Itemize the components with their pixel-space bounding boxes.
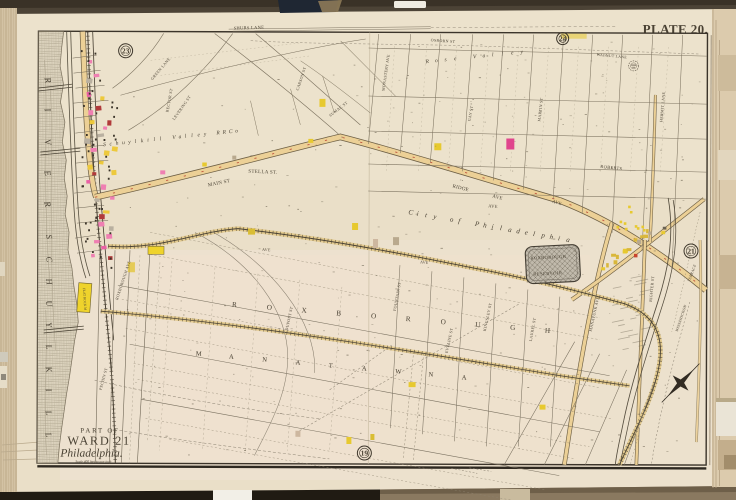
svg-text:Scale 400 feet to one inch: Scale 400 feet to one inch: [75, 460, 111, 464]
svg-text:AVE: AVE: [262, 247, 271, 253]
svg-text:WARD 21: WARD 21: [67, 434, 131, 448]
svg-text:R: R: [406, 315, 412, 323]
svg-text:G: G: [510, 324, 516, 332]
svg-text:R: R: [232, 301, 238, 309]
svg-text:N: N: [262, 357, 267, 364]
svg-text:M: M: [196, 351, 202, 358]
svg-text:A: A: [362, 365, 367, 372]
svg-text:23: 23: [122, 46, 130, 55]
svg-text:N: N: [428, 371, 433, 378]
svg-text:SHURS LANE: SHURS LANE: [234, 25, 265, 31]
svg-text:PLATE 20.: PLATE 20.: [643, 21, 709, 36]
svg-text:A: A: [229, 354, 234, 361]
svg-text:24: 24: [559, 34, 567, 43]
svg-text:B: B: [336, 309, 342, 317]
svg-text:O: O: [440, 318, 446, 326]
svg-text:A: A: [461, 374, 466, 381]
svg-text:Philadelphia.: Philadelphia.: [59, 448, 122, 460]
svg-text:19: 19: [361, 449, 369, 458]
svg-text:AVE: AVE: [488, 203, 498, 209]
svg-text:O: O: [266, 304, 272, 312]
svg-text:T: T: [328, 362, 333, 369]
svg-text:AVE: AVE: [420, 259, 429, 265]
svg-text:O: O: [371, 312, 377, 320]
svg-text:21: 21: [687, 247, 695, 256]
